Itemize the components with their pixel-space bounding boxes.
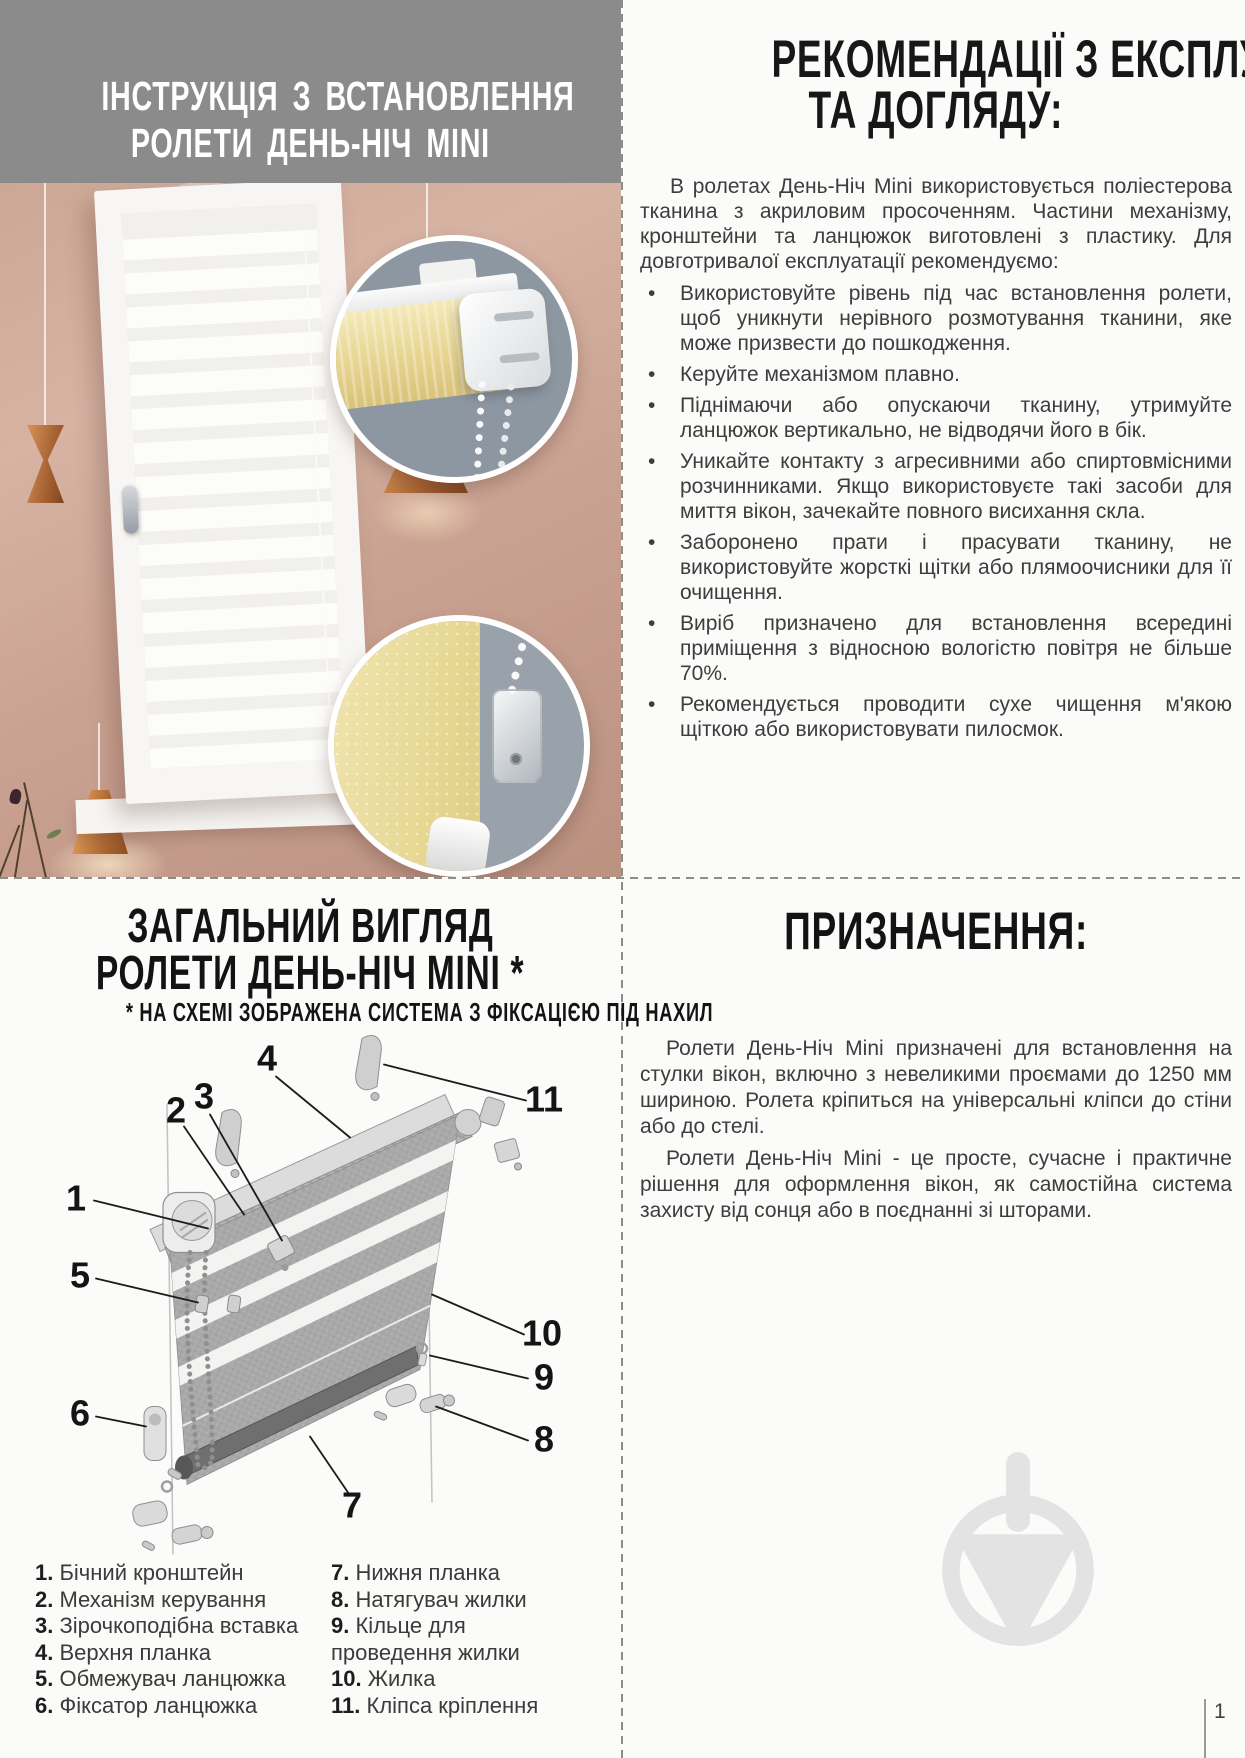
parts-legend-left-column: 1. Бічний кронштейн 2. Механізм керуванн… xyxy=(35,1560,327,1719)
purpose-body: Ролети День-Ніч Mini призначені для вста… xyxy=(640,1036,1232,1224)
closeup-inset-chain-holder xyxy=(328,615,590,877)
care-heading-line1: РЕКОМЕНДАЦІЇ З ЕКСПЛУАТАЦІЇ xyxy=(771,34,1245,85)
vertical-cut-line xyxy=(621,0,623,1758)
legend-item: 5. Обмежувач ланцюжка xyxy=(35,1666,327,1693)
chain-limiter xyxy=(195,1295,209,1314)
wire-ring xyxy=(162,1482,172,1492)
window-frame xyxy=(94,183,373,804)
care-heading: РЕКОМЕНДАЦІЇ З ЕКСПЛУАТАЦІЇ ТА ДОГЛЯДУ: xyxy=(640,34,1232,136)
callout-2: 2 xyxy=(166,1090,186,1131)
bullet-icon: • xyxy=(640,530,680,605)
pendant-lamp-hourglass xyxy=(27,425,64,503)
screw-icon xyxy=(141,1540,155,1551)
purpose-paragraph-2: Ролети День-Ніч Mini - це просте, сучасн… xyxy=(640,1146,1232,1224)
legend-item: 11. Кліпса кріплення xyxy=(331,1693,583,1720)
care-body: В ролетах День-Ніч Mini використовується… xyxy=(640,174,1232,742)
bead-chain xyxy=(507,615,536,695)
instruction-leaflet-page: ІНСТРУКЦІЯ З ВСТАНОВЛЕННЯ РОЛЕТИ ДЕНЬ-НІ… xyxy=(0,0,1245,1758)
legend-item: 1. Бічний кронштейн xyxy=(35,1560,327,1587)
bullet-icon: • xyxy=(640,611,680,686)
control-mechanism xyxy=(458,287,552,392)
bead-chain xyxy=(496,383,515,481)
install-title-line1: ІНСТРУКЦІЯ З ВСТАНОВЛЕННЯ xyxy=(0,73,621,120)
tensioner-screw xyxy=(171,1524,204,1546)
callout-10: 10 xyxy=(522,1313,562,1354)
general-view-heading: ЗАГАЛЬНИЙ ВИГЛЯД РОЛЕТИ ДЕНЬ-НІЧ MINI * … xyxy=(0,903,621,1027)
legend-item: 2. Механізм керування xyxy=(35,1587,327,1614)
screw-head xyxy=(444,1395,455,1406)
bullet-icon: • xyxy=(640,692,680,742)
care-bullet-item: •Керуйте механізмом плавно. xyxy=(640,362,1232,387)
legend-item: 3. Зірочкоподібна вставка xyxy=(35,1613,327,1640)
general-view-note: * НА СХЕМІ ЗОБРАЖЕНА СИСТЕМА З ФІКСАЦІЄЮ… xyxy=(126,997,713,1027)
legend-item: 10. Жилка xyxy=(331,1666,583,1693)
care-bullet-list: •Використовуйте рівень під час встановле… xyxy=(640,281,1232,742)
callout-8: 8 xyxy=(534,1419,554,1460)
callout-3: 3 xyxy=(194,1076,214,1117)
legend-item: 8. Натягувач жилки xyxy=(331,1587,583,1614)
tensioner-body xyxy=(131,1499,169,1528)
care-bullet-item: •Піднімаючи або опускаючи тканину, утрим… xyxy=(640,393,1232,443)
end-bracket xyxy=(478,1096,505,1127)
brand-watermark-icon xyxy=(938,1452,1098,1650)
window-handle xyxy=(121,485,138,534)
callout-7: 7 xyxy=(342,1485,362,1526)
mechanism-slot xyxy=(494,310,535,321)
care-recommendations-section: РЕКОМЕНДАЦІЇ З ЕКСПЛУАТАЦІЇ ТА ДОГЛЯДУ: … xyxy=(640,34,1232,742)
bullet-icon: • xyxy=(640,449,680,524)
bullet-icon: • xyxy=(640,393,680,443)
horizontal-cut-line xyxy=(0,877,1245,879)
window-blind-photo xyxy=(0,183,621,877)
care-bullet-item: •Виріб призначено для встановлення всере… xyxy=(640,611,1232,686)
fixator-hole xyxy=(149,1414,161,1426)
legend-item: 4. Верхня планка xyxy=(35,1640,327,1667)
general-view-line1: ЗАГАЛЬНИЙ ВИГЛЯД xyxy=(127,903,493,950)
install-title-banner: ІНСТРУКЦІЯ З ВСТАНОВЛЕННЯ РОЛЕТИ ДЕНЬ-НІ… xyxy=(0,0,621,183)
callout-11: 11 xyxy=(525,1079,563,1120)
install-title-line2: РОЛЕТИ ДЕНЬ-НІЧ MINI xyxy=(0,120,621,167)
callout-4: 4 xyxy=(257,1038,277,1079)
bullet-icon: • xyxy=(640,281,680,356)
bead-chain xyxy=(473,381,485,481)
care-bullet-item: •Уникайте контакту з агресивними або спи… xyxy=(640,449,1232,524)
window-glass xyxy=(121,203,345,768)
mounting-clip xyxy=(356,1036,382,1090)
chain-limiter xyxy=(227,1295,241,1314)
care-intro-paragraph: В ролетах День-Ніч Mini використовується… xyxy=(640,174,1232,274)
screw-icon xyxy=(373,1410,387,1421)
legend-item: 6. Фіксатор ланцюжка xyxy=(35,1693,327,1720)
callout-9: 9 xyxy=(534,1357,554,1398)
tulip-flower xyxy=(9,788,23,805)
callout-1: 1 xyxy=(66,1178,86,1219)
screw-icon xyxy=(231,1170,239,1178)
twig xyxy=(23,782,47,877)
twig xyxy=(14,799,28,877)
leaf xyxy=(46,828,63,841)
screw-icon xyxy=(515,1163,522,1170)
callout-5: 5 xyxy=(70,1255,90,1296)
purpose-section: ПРИЗНАЧЕННЯ: Ролети День-Ніч Mini призна… xyxy=(640,905,1232,1230)
care-bullet-item: •Рекомендується проводити сухе чищення м… xyxy=(640,692,1232,742)
roll-endcap xyxy=(455,1110,481,1136)
screw-icon xyxy=(282,1264,289,1271)
tensioner-screw xyxy=(418,1393,447,1414)
screw-head xyxy=(201,1527,213,1539)
parts-legend-right-column: 7. Нижня планка 8. Натягувач жилки 9. Кі… xyxy=(331,1560,583,1719)
screw-icon xyxy=(510,753,522,765)
general-view-line2: РОЛЕТИ ДЕНЬ-НІЧ MINI * xyxy=(96,950,524,997)
care-heading-line2: ТА ДОГЛЯДУ: xyxy=(809,85,1064,136)
chain-weight xyxy=(424,815,491,877)
mechanism-slot xyxy=(499,352,540,363)
loose-clip xyxy=(494,1138,520,1163)
tensioner-body xyxy=(384,1382,418,1408)
page-number: 1 xyxy=(1214,1700,1226,1724)
lamp-cord xyxy=(44,183,46,427)
screw-icon xyxy=(371,1093,379,1101)
purpose-paragraph-1: Ролети День-Ніч Mini призначені для вста… xyxy=(640,1036,1232,1140)
closeup-inset-mechanism xyxy=(330,235,578,483)
page-number-rule xyxy=(1204,1699,1206,1758)
assembly-diagram: 1 2 3 4 5 6 7 8 9 10 11 xyxy=(30,1033,590,1561)
lamp-cord xyxy=(98,723,100,793)
care-bullet-item: •Заборонено прати і прасувати тканину, н… xyxy=(640,530,1232,605)
mounting-clip xyxy=(216,1110,242,1166)
bullet-icon: • xyxy=(640,362,680,387)
care-bullet-item: •Використовуйте рівень під час встановле… xyxy=(640,281,1232,356)
legend-item: 7. Нижня планка xyxy=(331,1560,583,1587)
callout-6: 6 xyxy=(70,1393,90,1434)
day-night-blind-fabric xyxy=(123,229,345,768)
chain-holder-clip xyxy=(492,689,542,783)
purpose-heading: ПРИЗНАЧЕННЯ: xyxy=(640,905,1232,958)
legend-item: 9. Кільце для проведення жилки xyxy=(331,1613,583,1666)
